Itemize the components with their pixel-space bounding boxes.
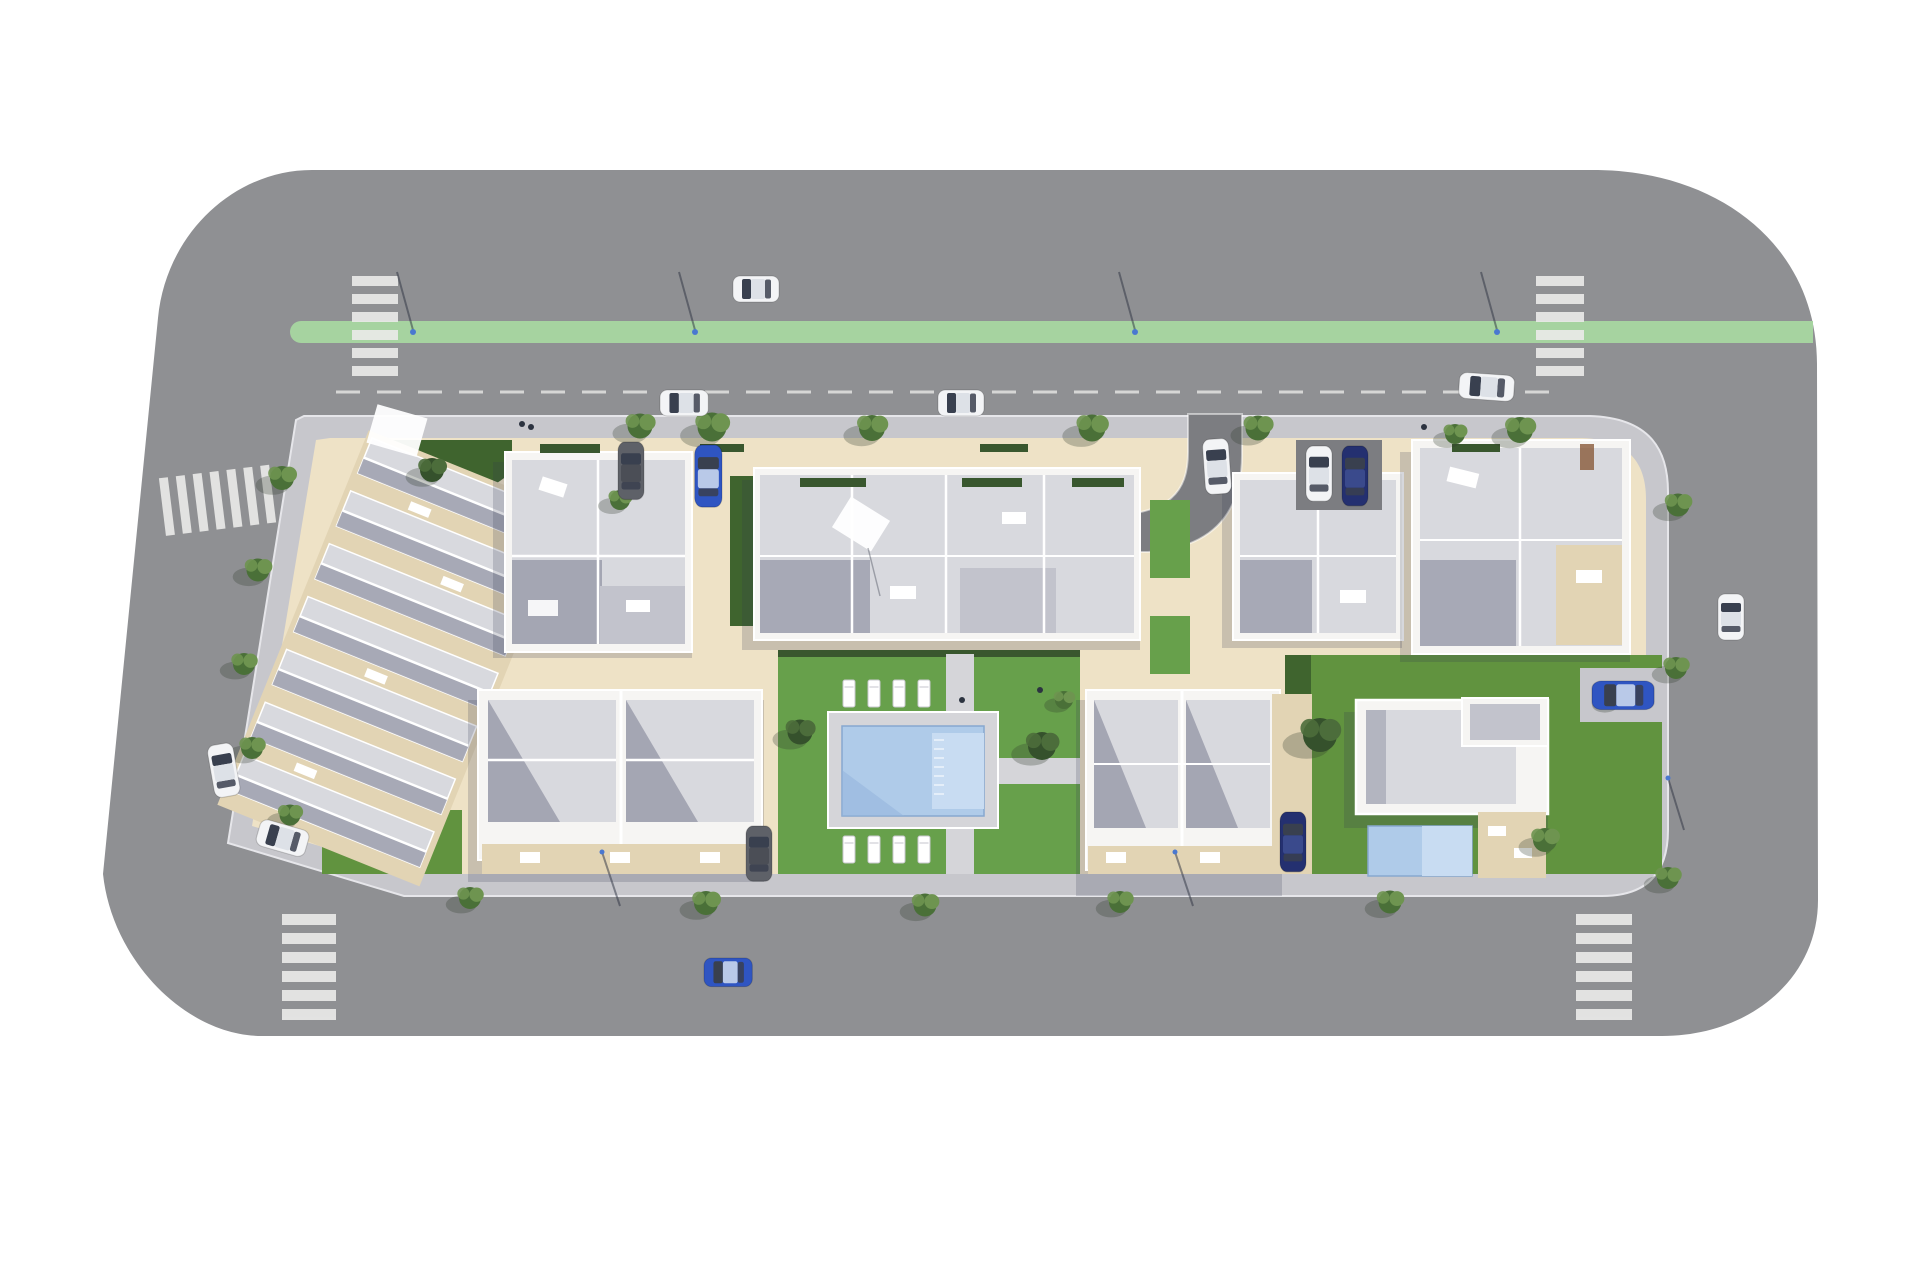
site-plan-canvas: Aerial top-down 3D architectural render …	[0, 0, 1920, 1279]
car-blue-villa	[1592, 681, 1654, 710]
roof-deck-table	[1580, 444, 1594, 470]
car-white-parked-corner	[1458, 372, 1515, 402]
roof-hedge	[800, 478, 866, 487]
courtyard-path-south	[946, 826, 974, 874]
car-darkblue-duplex-s	[1280, 812, 1306, 872]
villa-pool-shelf	[1422, 826, 1472, 876]
car-suv-duplex-sw	[746, 826, 772, 881]
sun-lounger	[918, 680, 930, 707]
car-white-north-road	[733, 276, 779, 302]
building-apartment-corner	[1400, 440, 1630, 662]
pool-lounge-shelf	[932, 733, 984, 809]
courtyard-path-north	[946, 654, 974, 714]
building-duplex-southwest	[468, 690, 764, 882]
car-darkblue-parking-bay	[1342, 446, 1368, 506]
roof-hedge	[1072, 478, 1124, 487]
sun-lounger	[843, 680, 855, 707]
site-plan-render: Aerial top-down 3D architectural render …	[0, 0, 1920, 1279]
sun-lounger	[918, 836, 930, 863]
sun-lounger	[893, 836, 905, 863]
car-blue-block-nw	[695, 445, 722, 507]
building-duplex-south	[1076, 690, 1312, 896]
courtyard-hedge	[778, 650, 1080, 657]
car-white-driveway	[1202, 438, 1232, 495]
roof-hedge	[962, 478, 1022, 487]
building-apartment-left	[493, 444, 692, 658]
car-white-suv-parking-bay	[1306, 446, 1332, 501]
green-bike-lane	[290, 321, 1813, 343]
corner-patio	[1556, 545, 1622, 645]
roof-hedge	[540, 444, 600, 453]
building-apartment-center	[742, 468, 1140, 650]
sun-lounger	[843, 836, 855, 863]
car-suv-block-nw	[618, 442, 644, 500]
car-white-parked-2	[938, 390, 984, 416]
sun-lounger	[868, 680, 880, 707]
sun-lounger	[893, 680, 905, 707]
car-white-east-road	[1718, 594, 1744, 640]
car-white-parked-1	[660, 390, 708, 416]
lawn-patch-driveway-2	[1150, 616, 1190, 674]
car-blue-south-road	[704, 958, 752, 987]
lawn-patch-driveway-1	[1150, 500, 1190, 578]
sun-lounger	[868, 836, 880, 863]
